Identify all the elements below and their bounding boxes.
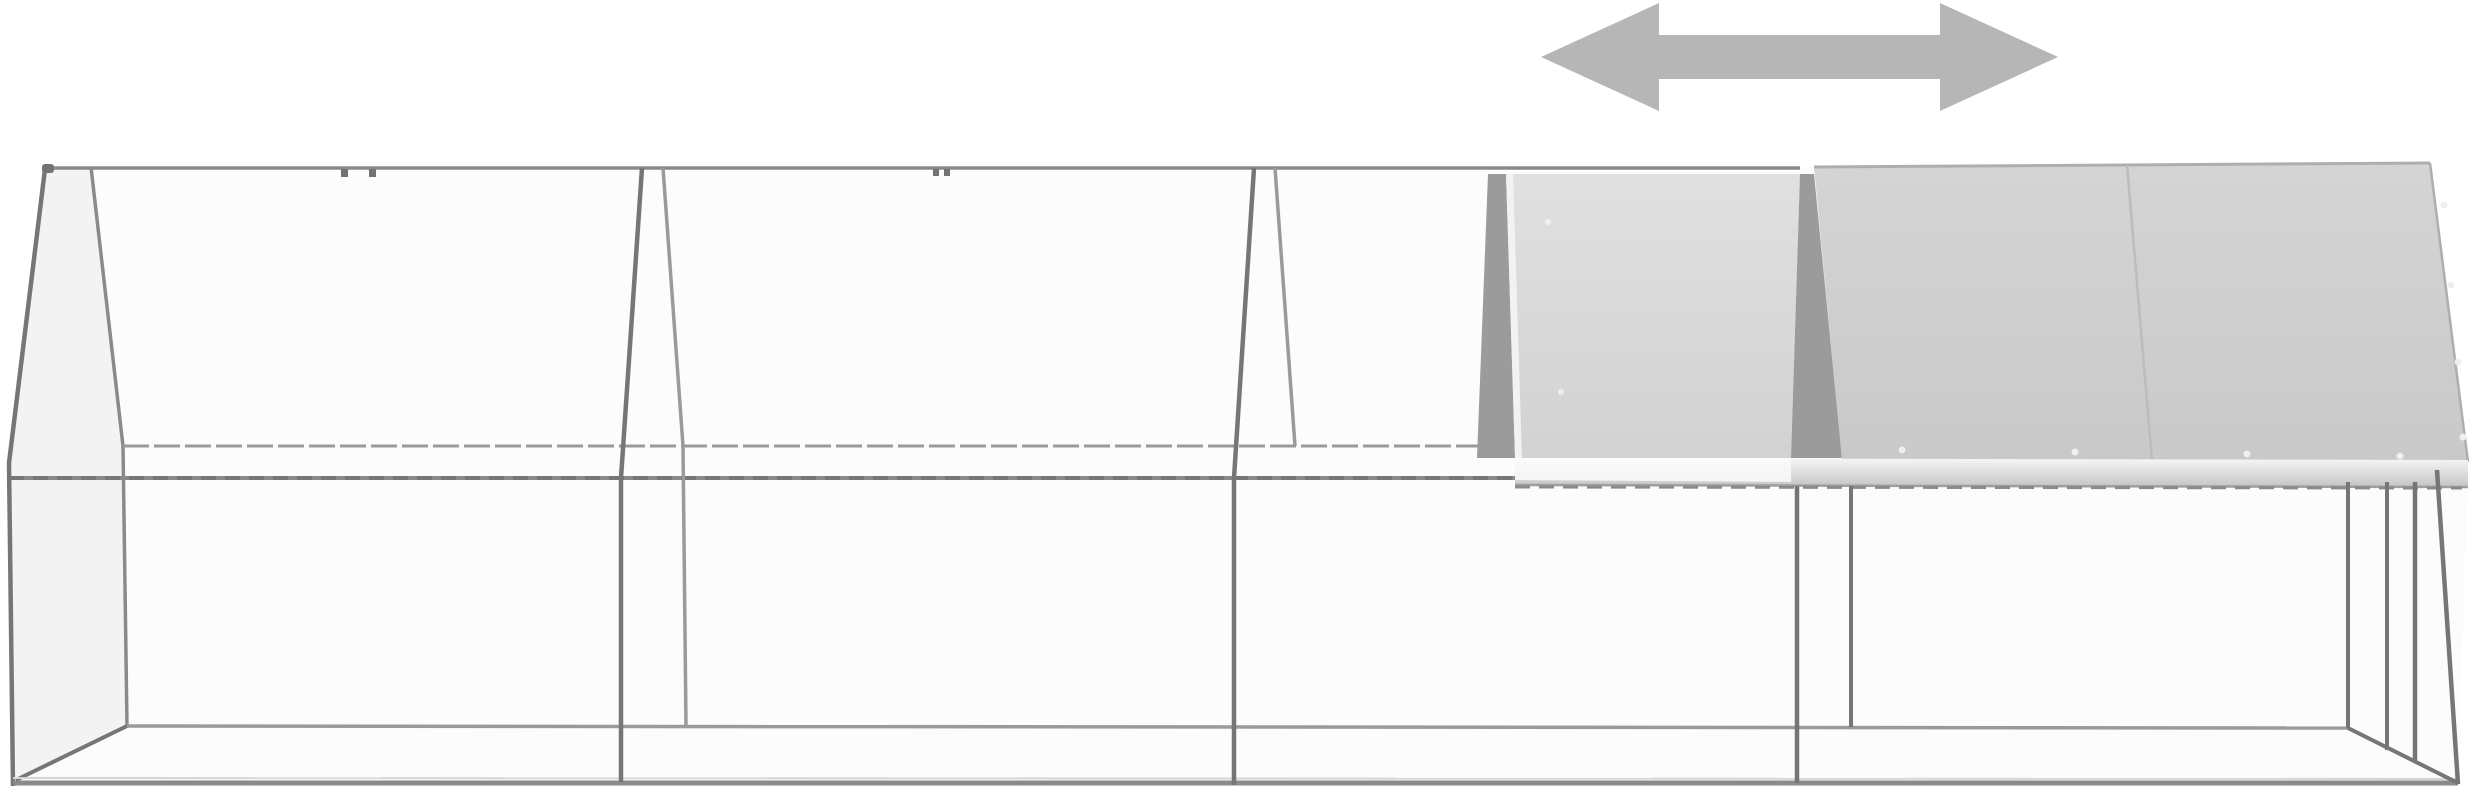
rivet xyxy=(2460,434,2467,441)
ridge-clamp xyxy=(341,169,348,177)
product-image xyxy=(0,0,2474,800)
ridge-clamp xyxy=(944,169,950,176)
back-bottom-rail xyxy=(127,726,2348,728)
rivet xyxy=(2397,453,2404,460)
rivet xyxy=(2441,202,2448,209)
sliding-roof-cover xyxy=(1477,174,1842,458)
fixed-roof-cover xyxy=(1814,163,2468,462)
rivet xyxy=(2244,451,2251,458)
rivet xyxy=(2072,449,2079,456)
sliding-roof-cover-panel xyxy=(1506,174,1800,458)
rivet xyxy=(2448,282,2455,289)
ridge-clamp xyxy=(369,169,376,177)
chicken-run-product-image xyxy=(0,0,2474,800)
roof-eave-bar xyxy=(1515,458,2468,488)
rivet xyxy=(1558,389,1564,395)
ridge-clamp xyxy=(933,169,939,176)
eave-bar-bright-section xyxy=(1515,458,1791,482)
fixed-roof-cover-panel xyxy=(1814,163,2468,462)
rivet xyxy=(2455,359,2462,366)
rivet xyxy=(1545,219,1551,225)
rivet xyxy=(1899,447,1906,454)
ridge-end-cap xyxy=(42,164,54,173)
horizontal-double-arrow-icon xyxy=(1541,3,2058,111)
